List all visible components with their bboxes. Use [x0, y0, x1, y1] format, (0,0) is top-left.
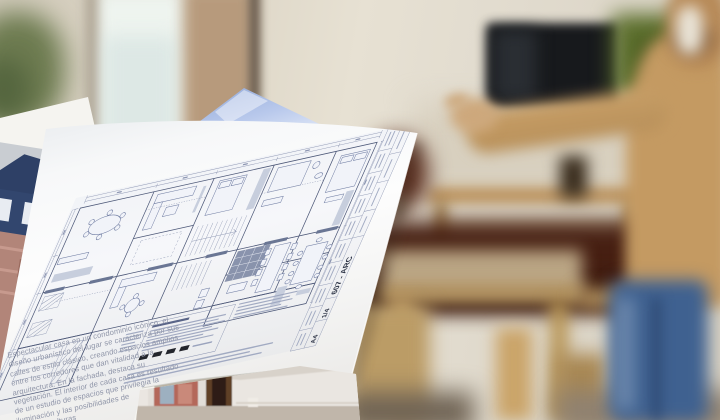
photo-scene: 607 - ARC 1/4 A4: [0, 0, 720, 420]
